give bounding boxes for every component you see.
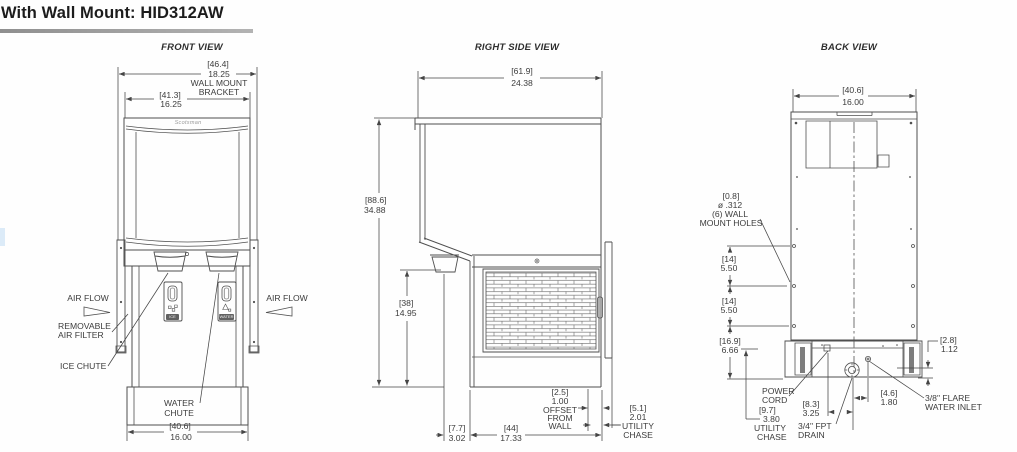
dim-hole-gap-1-in: 5.50	[721, 264, 738, 273]
water-drop-icon	[223, 304, 231, 311]
utility-chase-side-note-2: CHASE	[623, 431, 653, 440]
dim-base-width-in: 16.00	[170, 433, 192, 442]
dim-hole-gap-2-in: 5.50	[721, 306, 738, 315]
dim-back-width-mm: [40.6]	[842, 86, 864, 95]
drain-fitting	[845, 363, 859, 377]
spec-sheet: With Wall Mount: HID312AW FRONT VIEW RIG…	[0, 0, 1017, 452]
grille-handle	[598, 297, 603, 318]
dim-back-width-in: 16.00	[842, 98, 864, 107]
water-inlet-fitting	[865, 356, 870, 376]
wall-offset-note-3: WALL	[548, 422, 571, 431]
drain-label-2: DRAIN	[798, 431, 825, 440]
dim-inlet-offset-in: 1.80	[881, 398, 898, 407]
air-flow-arrow-right	[266, 307, 292, 316]
wall-mount-bracket-note-2: BRACKET	[199, 88, 240, 97]
dim-height-mm: [88.6]	[365, 196, 387, 205]
dim-grille-height-mm: [38]	[399, 299, 413, 308]
brand-logo: Scotsman	[175, 120, 202, 126]
dim-chute-offset-mm: [7.7]	[449, 424, 466, 433]
dim-depth-in: 24.38	[511, 79, 533, 88]
wall-mount-holes	[793, 245, 915, 328]
power-cord-label-2: CORD	[762, 396, 787, 405]
dim-height-in: 34.88	[364, 206, 386, 215]
drawing-linework	[0, 0, 1017, 452]
air-flow-label-right: AIR FLOW	[266, 294, 308, 303]
utility-chase-back-note-2: CHASE	[757, 433, 787, 442]
dim-hole-to-base-in: 6.66	[722, 346, 739, 355]
dim-body-depth-mm: [44]	[504, 424, 518, 433]
water-chute-label-1: WATER	[164, 399, 194, 408]
dim-power-offset-in: 3.25	[803, 409, 820, 418]
dim-grille-height-in: 14.95	[395, 309, 417, 318]
dim-base-width-mm: [40.6]	[169, 422, 191, 431]
dim-bracket-lip-in: 1.12	[941, 345, 958, 354]
dim-body-depth-in: 17.33	[500, 434, 522, 443]
water-inlet-label-2: WATER INLET	[925, 403, 982, 412]
dim-bracket-width-mm: [46.4]	[207, 60, 229, 69]
right-side-view-drawing	[372, 71, 621, 441]
ice-cubes-icon	[169, 305, 178, 311]
air-flow-label-left: AIR FLOW	[67, 294, 109, 303]
dim-cabinet-width-in: 16.25	[160, 100, 182, 109]
water-chute-label-2: CHUTE	[164, 409, 194, 418]
dim-chute-offset-in: 3.02	[449, 434, 466, 443]
ice-chute-label: ICE CHUTE	[60, 362, 106, 371]
dim-depth-mm: [61.9]	[511, 67, 533, 76]
removable-air-filter-label-2: AIR FILTER	[58, 331, 104, 340]
back-view-drawing	[727, 89, 938, 430]
ice-panel-label: ICE	[166, 314, 179, 320]
air-flow-arrow-left	[84, 307, 110, 316]
water-panel-label: WATER	[219, 314, 234, 320]
mount-holes-note-2: MOUNT HOLES	[700, 219, 763, 228]
